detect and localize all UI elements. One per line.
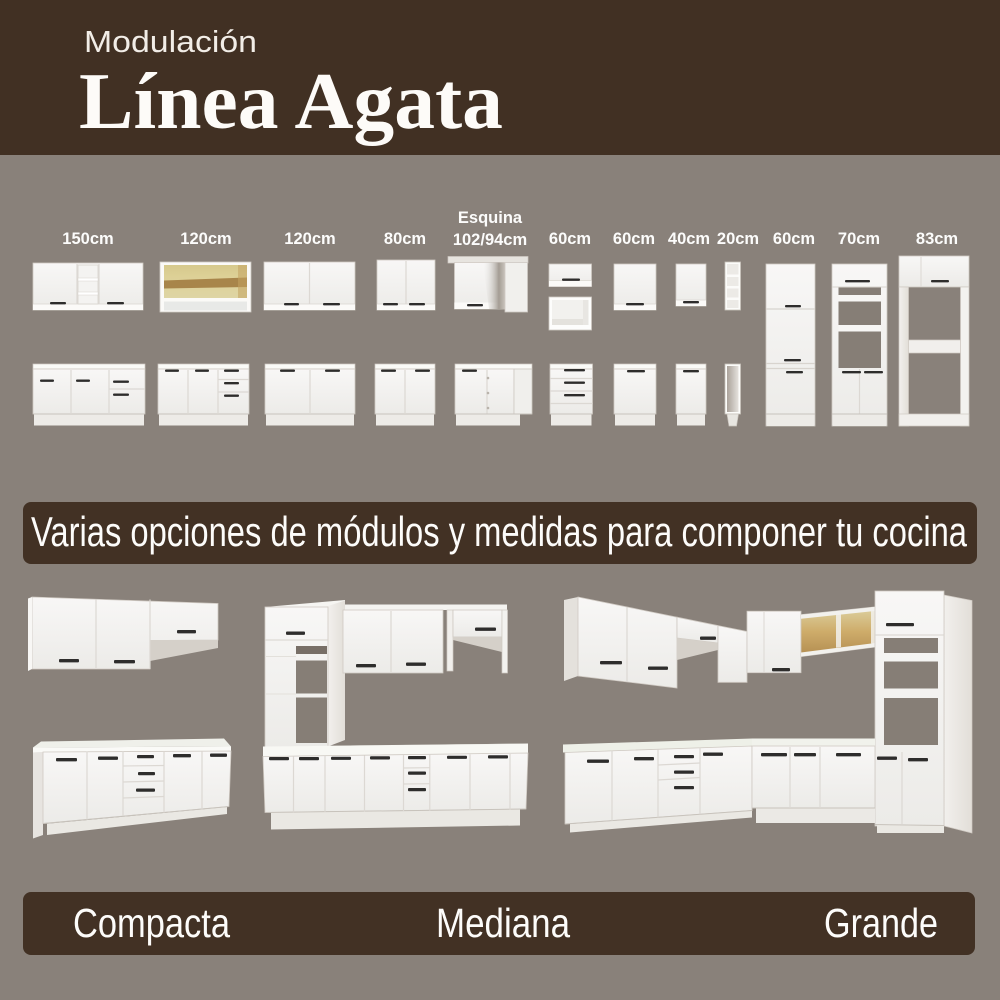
svg-text:150cm: 150cm (62, 230, 113, 248)
svg-text:Esquina: Esquina (458, 209, 523, 227)
svg-text:120cm: 120cm (284, 230, 335, 248)
svg-text:20cm: 20cm (717, 230, 759, 248)
svg-text:Mediana: Mediana (436, 900, 570, 946)
svg-text:60cm: 60cm (773, 230, 815, 248)
svg-text:102/94cm: 102/94cm (453, 231, 527, 249)
svg-text:40cm: 40cm (668, 230, 710, 248)
svg-text:60cm: 60cm (613, 230, 655, 248)
svg-text:70cm: 70cm (838, 230, 880, 248)
svg-text:Línea Agata: Línea Agata (79, 58, 503, 146)
svg-text:Varias opciones de módulos y m: Varias opciones de módulos y medidas par… (31, 508, 967, 555)
svg-text:Compacta: Compacta (73, 900, 230, 946)
svg-text:Modulación: Modulación (84, 24, 257, 59)
svg-text:120cm: 120cm (180, 230, 231, 248)
svg-text:60cm: 60cm (549, 230, 591, 248)
svg-text:Grande: Grande (824, 900, 938, 946)
svg-text:83cm: 83cm (916, 230, 958, 248)
svg-text:80cm: 80cm (384, 230, 426, 248)
